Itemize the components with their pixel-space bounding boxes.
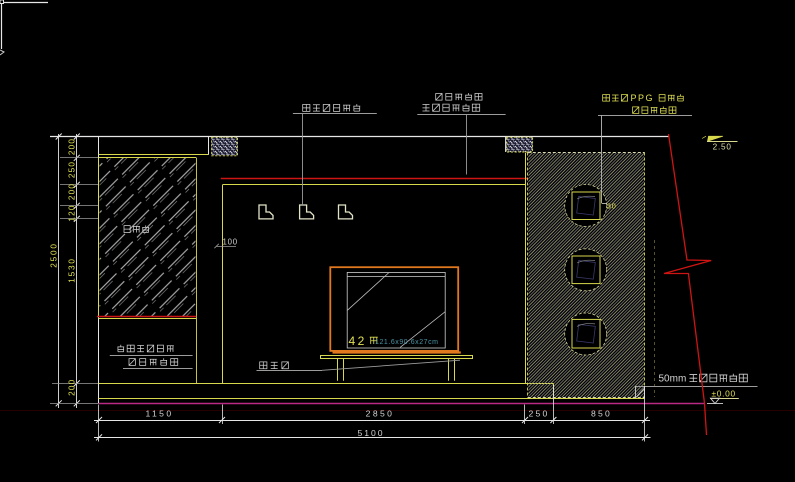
svg-text:250: 250	[68, 161, 77, 178]
svg-text:200: 200	[68, 183, 77, 200]
svg-text:30: 30	[607, 201, 617, 210]
svg-text:2850: 2850	[366, 409, 395, 419]
svg-text:PPG: PPG	[631, 93, 655, 103]
svg-text:100: 100	[223, 238, 238, 247]
svg-text:2500: 2500	[50, 242, 59, 267]
svg-text:120: 120	[68, 204, 77, 221]
svg-text:50mm: 50mm	[659, 374, 687, 385]
svg-text:250: 250	[529, 409, 550, 419]
svg-text:850: 850	[591, 409, 612, 419]
svg-text:1530: 1530	[68, 257, 77, 282]
svg-text:42: 42	[349, 334, 367, 348]
svg-text:2.50: 2.50	[713, 143, 732, 152]
svg-text:200: 200	[68, 138, 77, 155]
svg-text:±0.00: ±0.00	[712, 388, 736, 398]
svg-text:121.6x90.6x27cm: 121.6x90.6x27cm	[375, 339, 439, 346]
svg-text:5100: 5100	[357, 428, 384, 438]
svg-text:200: 200	[68, 379, 77, 396]
svg-text:1150: 1150	[145, 409, 173, 419]
